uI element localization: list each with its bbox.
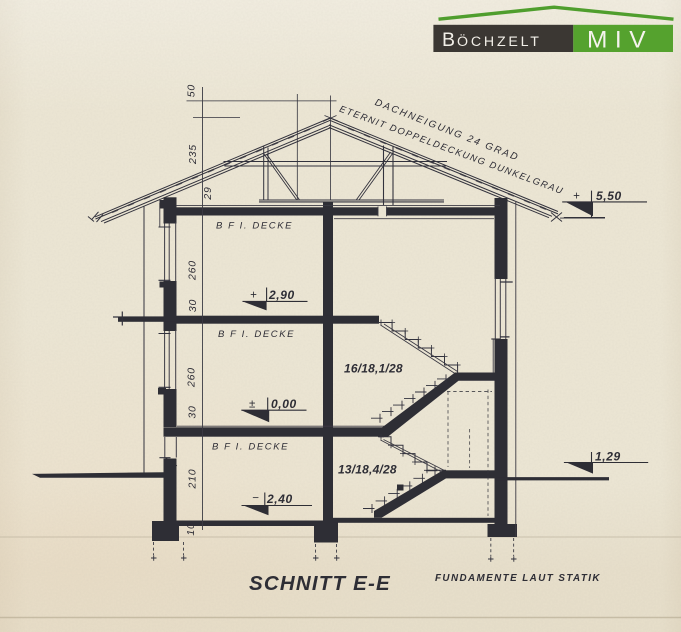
svg-text:1,29: 1,29 bbox=[595, 449, 621, 463]
svg-text:260: 260 bbox=[187, 260, 199, 281]
svg-text:B F I. DECKE: B F I. DECKE bbox=[216, 221, 293, 232]
svg-text:13/18,4/28: 13/18,4/28 bbox=[338, 463, 397, 477]
svg-text:16/18,1/28: 16/18,1/28 bbox=[344, 362, 403, 376]
svg-text:−: − bbox=[252, 493, 259, 505]
svg-text:SCHNITT E-E: SCHNITT E-E bbox=[249, 572, 391, 595]
svg-text:30: 30 bbox=[187, 299, 199, 312]
svg-text:+: + bbox=[573, 191, 580, 203]
svg-text:2,90: 2,90 bbox=[268, 288, 295, 302]
svg-text:29: 29 bbox=[202, 186, 214, 200]
svg-text:50: 50 bbox=[186, 84, 198, 97]
svg-text:2,40: 2,40 bbox=[266, 492, 293, 506]
svg-text:5,50: 5,50 bbox=[596, 189, 622, 203]
svg-text:FUNDAMENTE LAUT STATIK: FUNDAMENTE LAUT STATIK bbox=[435, 573, 601, 584]
svg-text:30: 30 bbox=[187, 405, 199, 418]
svg-text:±: ± bbox=[249, 399, 255, 411]
svg-text:B F I. DECKE: B F I. DECKE bbox=[218, 329, 295, 340]
svg-text:+: + bbox=[250, 290, 257, 302]
svg-text:0,00: 0,00 bbox=[271, 397, 297, 411]
svg-text:235: 235 bbox=[187, 144, 199, 165]
svg-text:MIV: MIV bbox=[587, 27, 653, 54]
svg-text:B F I. DECKE: B F I. DECKE bbox=[212, 442, 289, 453]
svg-text:210: 210 bbox=[187, 469, 199, 490]
svg-text:260: 260 bbox=[186, 367, 198, 388]
svg-text:10: 10 bbox=[185, 522, 197, 535]
